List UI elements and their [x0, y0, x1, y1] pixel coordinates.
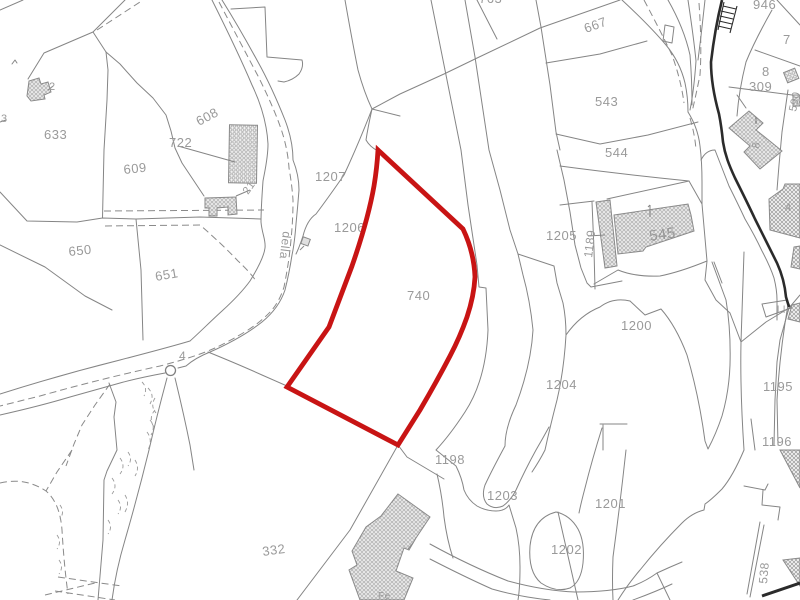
svg-text:722: 722: [169, 135, 192, 150]
svg-text:633: 633: [44, 127, 67, 142]
svg-text:1195: 1195: [763, 379, 793, 394]
svg-text:1205: 1205: [546, 228, 577, 243]
svg-text:l l: l l: [777, 305, 786, 316]
svg-text:650: 650: [68, 242, 93, 259]
svg-text:4: 4: [785, 202, 792, 214]
svg-text:2: 2: [49, 81, 56, 93]
svg-text:4: 4: [179, 349, 186, 363]
svg-text:609: 609: [123, 160, 148, 177]
svg-text:1203: 1203: [487, 488, 518, 503]
svg-text:Fe: Fe: [378, 591, 391, 600]
svg-text:538: 538: [756, 562, 772, 585]
svg-text:740: 740: [407, 288, 430, 303]
svg-text:763: 763: [479, 0, 502, 6]
svg-text:3: 3: [1, 113, 8, 125]
svg-text:8: 8: [762, 64, 770, 79]
svg-text:946: 946: [753, 0, 776, 12]
svg-text:1204: 1204: [546, 377, 577, 392]
svg-text:543: 543: [595, 94, 618, 109]
svg-text:1200: 1200: [621, 318, 652, 333]
svg-text:7: 7: [783, 32, 791, 47]
svg-text:1196: 1196: [762, 434, 792, 449]
svg-text:1198: 1198: [435, 452, 465, 467]
svg-text:1207: 1207: [315, 169, 346, 184]
svg-text:332: 332: [261, 541, 286, 559]
svg-text:1202: 1202: [551, 542, 582, 557]
svg-text:1201: 1201: [595, 496, 626, 511]
svg-text:309: 309: [749, 79, 772, 94]
svg-text:544: 544: [605, 145, 628, 160]
